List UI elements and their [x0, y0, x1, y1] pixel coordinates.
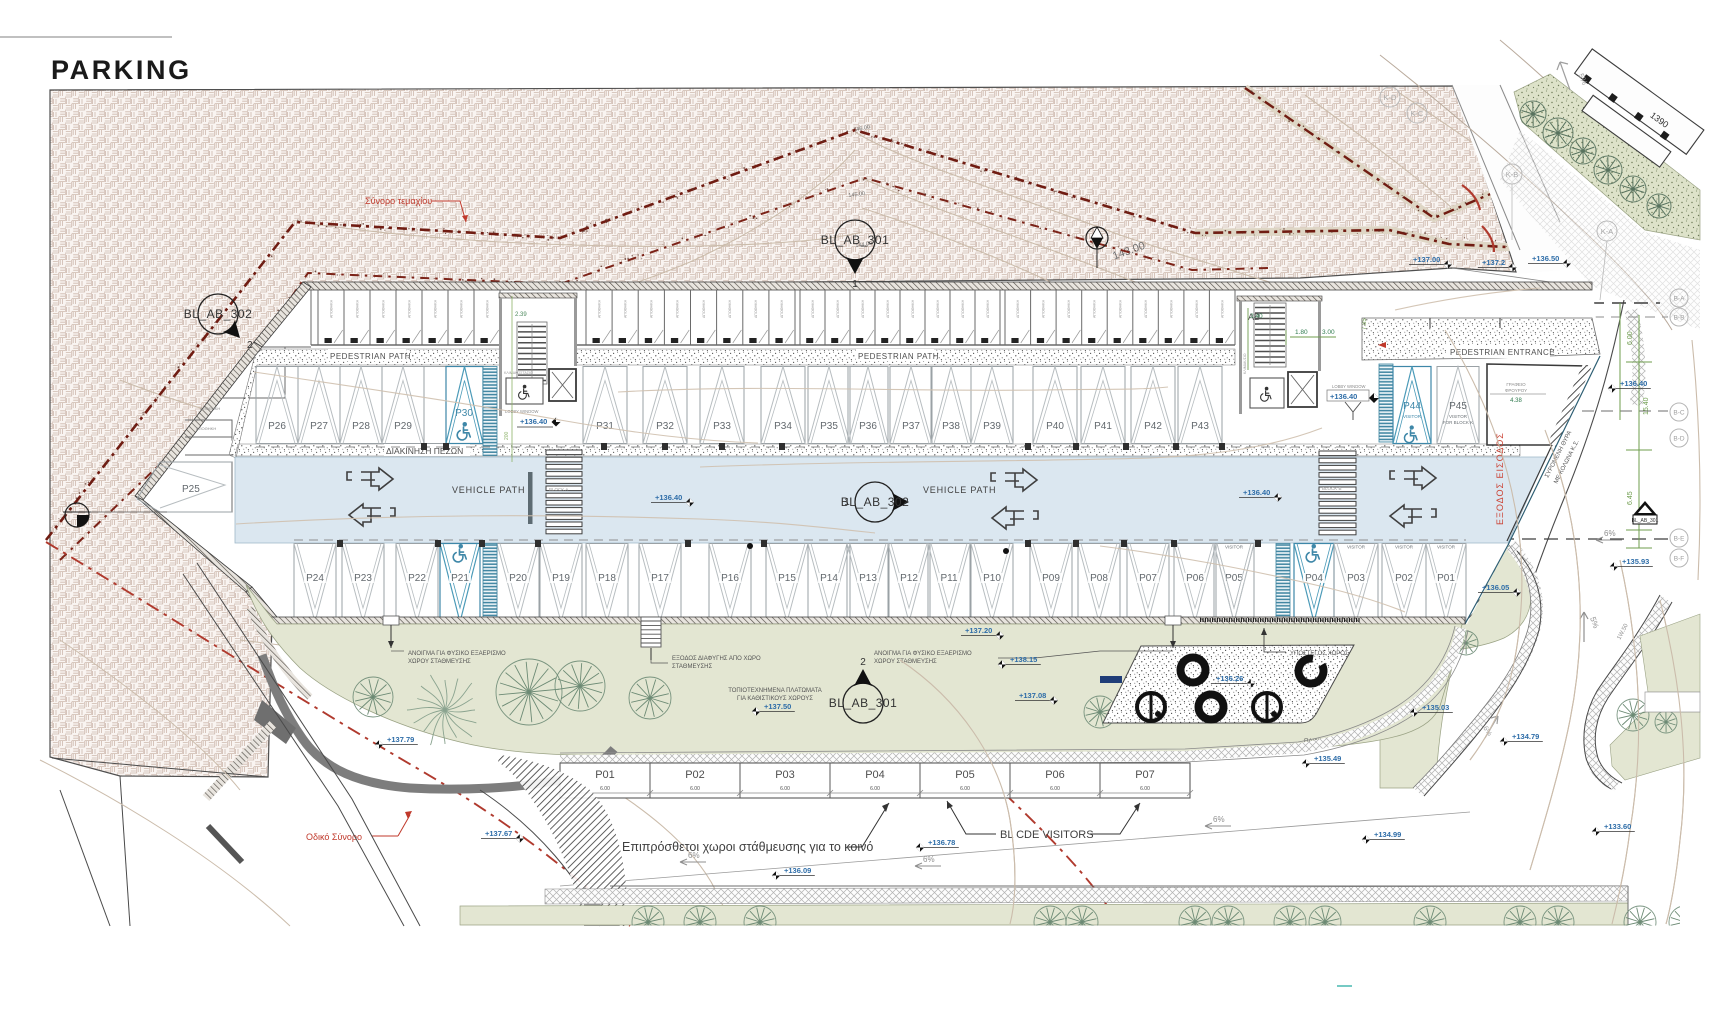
- svg-text:ΣΤΑΘΜΕΥΣΗΣ: ΣΤΑΘΜΕΥΣΗΣ: [672, 664, 713, 670]
- svg-text:K-D: K-D: [1384, 93, 1398, 102]
- svg-text:P24: P24: [306, 573, 324, 584]
- svg-text:+136.26: +136.26: [1216, 674, 1243, 683]
- svg-text:2: 2: [860, 657, 866, 668]
- svg-text:ΑΠΟΘΗΚΗ: ΑΠΟΘΗΚΗ: [433, 299, 437, 318]
- svg-text:ΑΠΟΘΗΚΗ: ΑΠΟΘΗΚΗ: [196, 426, 216, 431]
- svg-text:P07: P07: [1135, 769, 1155, 781]
- svg-text:1: 1: [852, 279, 858, 290]
- svg-text:ΑΠΟΘΗΚΗ: ΑΠΟΘΗΚΗ: [650, 299, 654, 318]
- svg-text:BL_AB_302: BL_AB_302: [841, 495, 910, 509]
- svg-text:P16: P16: [721, 573, 739, 584]
- svg-text:P41: P41: [1094, 421, 1112, 432]
- svg-text:ΓΡΑΦΕΙΟ: ΓΡΑΦΕΙΟ: [1506, 382, 1526, 387]
- svg-text:Σύνορο τεμαχίου: Σύνορο τεμαχίου: [365, 196, 432, 206]
- svg-text:ΑΠΟΘΗΚΗ: ΑΠΟΘΗΚΗ: [676, 299, 680, 318]
- svg-text:P30: P30: [455, 408, 473, 419]
- svg-text:P20: P20: [509, 573, 527, 584]
- svg-text:LOBBY WINDOW: LOBBY WINDOW: [1332, 384, 1365, 389]
- svg-text:P39: P39: [983, 421, 1001, 432]
- svg-text:15.40: 15.40: [1643, 397, 1650, 415]
- svg-text:ΑΠΟΘΗΚΗ: ΑΠΟΘΗΚΗ: [836, 299, 840, 318]
- svg-text:+136.09: +136.09: [784, 866, 811, 875]
- svg-text:6.00: 6.00: [1627, 331, 1634, 345]
- svg-text:2.39: 2.39: [515, 312, 527, 318]
- svg-text:ΧΩΡΟΥ ΣΤΑΘΜΕΥΣΗΣ: ΧΩΡΟΥ ΣΤΑΘΜΕΥΣΗΣ: [408, 659, 471, 665]
- svg-text:B-E: B-E: [1674, 536, 1686, 543]
- svg-text:P06: P06: [1045, 769, 1065, 781]
- svg-text:6.00: 6.00: [690, 786, 700, 792]
- svg-text:VISITOR: VISITOR: [1347, 545, 1366, 550]
- svg-text:6%: 6%: [1604, 529, 1616, 538]
- svg-text:P45: P45: [1449, 401, 1467, 412]
- svg-text:P44: P44: [1403, 401, 1421, 412]
- svg-text:+137.2: +137.2: [1482, 258, 1505, 267]
- svg-text:VISITOR: VISITOR: [1403, 414, 1422, 419]
- svg-text:ΑΠΟΘΗΚΗ: ΑΠΟΘΗΚΗ: [1016, 299, 1020, 318]
- svg-text:P19: P19: [552, 573, 570, 584]
- svg-text:ΑΠΟΘΗΚΗ: ΑΠΟΘΗΚΗ: [728, 299, 732, 318]
- svg-text:K-A: K-A: [1601, 227, 1614, 236]
- svg-text:+136.40: +136.40: [1243, 488, 1270, 497]
- svg-text:BLOCK A: BLOCK A: [549, 487, 568, 492]
- svg-text:6.00: 6.00: [600, 786, 610, 792]
- svg-text:6.00: 6.00: [780, 786, 790, 792]
- svg-text:+137.00: +137.00: [1413, 255, 1440, 264]
- svg-text:+134.99: +134.99: [1374, 830, 1401, 839]
- svg-text:P25: P25: [182, 484, 200, 495]
- svg-text:VISITOR: VISITOR: [1437, 545, 1456, 550]
- svg-text:6.00: 6.00: [1050, 786, 1060, 792]
- svg-text:BL_AB_301: BL_AB_301: [821, 233, 890, 247]
- svg-text:ΚΛΙΜΑΚ/ΣΙΟ: ΚΛΙΜΑΚ/ΣΙΟ: [1243, 353, 1247, 374]
- svg-text:VEHICLE PATH: VEHICLE PATH: [923, 485, 996, 495]
- svg-text:2.40: 2.40: [1250, 313, 1263, 320]
- svg-text:P27: P27: [310, 421, 328, 432]
- svg-text:ΑΠΟΘΗΚΗ: ΑΠΟΘΗΚΗ: [702, 299, 706, 318]
- svg-text:P04: P04: [865, 769, 885, 781]
- svg-text:P01: P01: [1437, 573, 1455, 584]
- svg-text:P35: P35: [820, 421, 838, 432]
- svg-text:P42: P42: [1144, 421, 1162, 432]
- svg-text:P09: P09: [1042, 573, 1060, 584]
- svg-text:+135.03: +135.03: [1422, 703, 1449, 712]
- svg-text:PEDESTRIAN PATH: PEDESTRIAN PATH: [330, 352, 411, 361]
- svg-text:+136.78: +136.78: [928, 838, 955, 847]
- svg-text:P06: P06: [1186, 573, 1204, 584]
- svg-text:ΑΠΟΘΗΚΗ: ΑΠΟΘΗΚΗ: [624, 299, 628, 318]
- svg-text:+137.20: +137.20: [965, 626, 992, 635]
- svg-text:P03: P03: [775, 769, 795, 781]
- svg-text:BL CDE VISITORS: BL CDE VISITORS: [1000, 829, 1094, 841]
- svg-text:ΕΞΟΔΟΣ ΕΙΣΟΔΟΣ: ΕΞΟΔΟΣ ΕΙΣΟΔΟΣ: [1495, 432, 1505, 525]
- svg-text:ΑΠΟΘΗΚΗ: ΑΠΟΘΗΚΗ: [1118, 299, 1122, 318]
- svg-text:P10: P10: [983, 573, 1001, 584]
- svg-text:+135.49: +135.49: [1314, 754, 1341, 763]
- svg-text:6%: 6%: [1213, 815, 1225, 824]
- svg-text:ΑΠΟΘΗΚΗ: ΑΠΟΘΗΚΗ: [936, 299, 940, 318]
- svg-text:P13: P13: [859, 573, 877, 584]
- svg-text:6.00: 6.00: [1140, 786, 1150, 792]
- svg-text:P01: P01: [595, 769, 615, 781]
- svg-text:6.00: 6.00: [870, 786, 880, 792]
- svg-text:P43: P43: [1191, 421, 1209, 432]
- svg-text:VISITOR: VISITOR: [1395, 545, 1414, 550]
- svg-text:PARKING: PARKING: [51, 55, 192, 85]
- svg-text:ΑΠΟΘΗΚΗ: ΑΠΟΘΗΚΗ: [1144, 299, 1148, 318]
- svg-text:P18: P18: [598, 573, 616, 584]
- svg-text:+137.79: +137.79: [387, 735, 414, 744]
- svg-text:P21: P21: [451, 573, 469, 584]
- svg-text:B-D: B-D: [1673, 436, 1685, 443]
- svg-text:ΑΠΟΘΗΚΗ: ΑΠΟΘΗΚΗ: [485, 299, 489, 318]
- svg-text:ΑΠΟΘΗΚΗ: ΑΠΟΘΗΚΗ: [407, 299, 411, 318]
- svg-text:ΑΝΟΙΓΜΑ ΓΙΑ ΦΥΣΙΚΟ ΕΞΑΕΡΙΣΜΟ: ΑΝΟΙΓΜΑ ΓΙΑ ΦΥΣΙΚΟ ΕΞΑΕΡΙΣΜΟ: [408, 651, 506, 657]
- svg-text:B-F: B-F: [1674, 556, 1685, 563]
- svg-text:6%: 6%: [688, 851, 700, 860]
- svg-text:4.38: 4.38: [1510, 398, 1522, 404]
- svg-text:P28: P28: [352, 421, 370, 432]
- svg-text:BL_AB_301: BL_AB_301: [829, 696, 898, 710]
- svg-text:P32: P32: [656, 421, 674, 432]
- svg-text:ΚΛΙΜΑΚΟΣΤΑΣΙΟ: ΚΛΙΜΑΚΟΣΤΑΣΙΟ: [504, 371, 533, 375]
- svg-text:ΑΠΟΘΗΚΗ: ΑΠΟΘΗΚΗ: [597, 299, 601, 318]
- svg-text:+136.40: +136.40: [1620, 379, 1647, 388]
- svg-text:PEDESTRIAN ENTRANCE: PEDESTRIAN ENTRANCE: [1450, 348, 1555, 357]
- svg-text:VISITOR: VISITOR: [1449, 414, 1468, 419]
- svg-text:ΥΠΟΣΤΕΓΟΣ ΧΩΡΟΣ: ΥΠΟΣΤΕΓΟΣ ΧΩΡΟΣ: [1290, 651, 1349, 657]
- svg-text:BLOCK B: BLOCK B: [1322, 486, 1342, 491]
- svg-text:ΑΠΟΘΗΚΗ: ΑΠΟΘΗΚΗ: [1067, 299, 1071, 318]
- svg-text:200: 200: [504, 431, 510, 440]
- svg-text:P26: P26: [268, 421, 286, 432]
- svg-text:6.00: 6.00: [960, 786, 970, 792]
- svg-text:+137.08: +137.08: [1019, 691, 1046, 700]
- svg-text:P12: P12: [900, 573, 918, 584]
- svg-text:ΤΟΠΙΟΤΕΧΝΗΜΕΝΑ ΠΛΑΤΩΜΑΤΑ: ΤΟΠΙΟΤΕΧΝΗΜΕΝΑ ΠΛΑΤΩΜΑΤΑ: [728, 688, 822, 694]
- svg-text:BL_AB_302: BL_AB_302: [184, 307, 253, 321]
- svg-text:ΑΠΟΘΗΚΗ: ΑΠΟΘΗΚΗ: [911, 299, 915, 318]
- svg-text:P15: P15: [778, 573, 796, 584]
- svg-text:P22: P22: [408, 573, 426, 584]
- svg-text:K-B: K-B: [1506, 170, 1519, 179]
- svg-text:P05: P05: [955, 769, 975, 781]
- svg-text:P17: P17: [651, 573, 669, 584]
- svg-text:+136.50: +136.50: [1532, 254, 1559, 263]
- svg-text:P40: P40: [1046, 421, 1064, 432]
- svg-text:ΑΠΟΘΗΚΗ: ΑΠΟΘΗΚΗ: [1169, 299, 1173, 318]
- svg-text:BL_AB_301: BL_AB_301: [1632, 518, 1659, 524]
- svg-text:B-A: B-A: [1674, 296, 1686, 303]
- svg-text:+136.05: +136.05: [1482, 583, 1509, 592]
- svg-text:P33: P33: [713, 421, 731, 432]
- svg-text:3.00: 3.00: [1322, 329, 1335, 336]
- svg-text:P08: P08: [1090, 573, 1108, 584]
- svg-text:P23: P23: [354, 573, 372, 584]
- svg-text:+134.79: +134.79: [1512, 732, 1539, 741]
- svg-text:+136.40: +136.40: [655, 493, 682, 502]
- svg-text:ΕΞΟΔΟΣ ΔΙΑΦΥΓΗΣ ΑΠΟ ΧΩΡΟ: ΕΞΟΔΟΣ ΔΙΑΦΥΓΗΣ ΑΠΟ ΧΩΡΟ: [672, 656, 761, 662]
- svg-text:ΑΠΟΘΗΚΗ: ΑΠΟΘΗΚΗ: [1093, 299, 1097, 318]
- svg-text:6.45: 6.45: [1627, 491, 1634, 505]
- svg-text:P37: P37: [902, 421, 920, 432]
- svg-text:ΑΠΟΘΗΚΗ: ΑΠΟΘΗΚΗ: [329, 299, 333, 318]
- svg-text:1.80: 1.80: [1295, 329, 1308, 336]
- svg-text:2: 2: [247, 340, 253, 351]
- svg-text:P03: P03: [1347, 573, 1365, 584]
- svg-text:ΑΠΟΘΗΚΗ: ΑΠΟΘΗΚΗ: [886, 299, 890, 318]
- svg-text:Επιπρόσθετοι χωροι στάθμευσης: Επιπρόσθετοι χωροι στάθμευσης για το κοι…: [622, 840, 873, 854]
- svg-text:ΑΠΟΘΗΚΗ: ΑΠΟΘΗΚΗ: [1221, 299, 1225, 318]
- svg-text:ΑΠΟΘΗΚΗ: ΑΠΟΘΗΚΗ: [754, 299, 758, 318]
- svg-text:P36: P36: [859, 421, 877, 432]
- svg-text:ΑΠΟΘΗΚΗ: ΑΠΟΘΗΚΗ: [381, 299, 385, 318]
- svg-text:ΑΠΟΘΗΚΗ: ΑΠΟΘΗΚΗ: [861, 299, 865, 318]
- svg-text:+137.67: +137.67: [485, 829, 512, 838]
- svg-text:ΑΠΟΘΗΚΗ: ΑΠΟΘΗΚΗ: [961, 299, 965, 318]
- svg-text:P02: P02: [1395, 573, 1413, 584]
- svg-text:ΦΡΟΥΡΟΥ: ΦΡΟΥΡΟΥ: [1505, 388, 1527, 393]
- svg-text:P34: P34: [774, 421, 792, 432]
- svg-text:+137.50: +137.50: [764, 702, 791, 711]
- svg-text:K-C: K-C: [1411, 109, 1425, 118]
- svg-text:PEDESTRIAN PATH: PEDESTRIAN PATH: [858, 352, 939, 361]
- svg-text:+136.40: +136.40: [520, 417, 547, 426]
- svg-text:ΑΠΟΘΗΚΗ: ΑΠΟΘΗΚΗ: [1195, 299, 1199, 318]
- svg-text:VISITOR: VISITOR: [1225, 545, 1244, 550]
- svg-text:ΑΠΟΘΗΚΗ: ΑΠΟΘΗΚΗ: [986, 299, 990, 318]
- svg-text:ΑΝΟΙΓΜΑ ΓΙΑ ΦΥΣΙΚΟ ΕΞΑΕΡΙΣΜΟ: ΑΝΟΙΓΜΑ ΓΙΑ ΦΥΣΙΚΟ ΕΞΑΕΡΙΣΜΟ: [874, 651, 972, 657]
- svg-text:P04: P04: [1305, 573, 1323, 584]
- svg-text:ΑΠΟΘΗΚΗ: ΑΠΟΘΗΚΗ: [355, 299, 359, 318]
- svg-text:ΑΠΟΘΗΚΗ: ΑΠΟΘΗΚΗ: [1042, 299, 1046, 318]
- svg-text:P02: P02: [685, 769, 705, 781]
- svg-text:FOR BLOCK K: FOR BLOCK K: [1443, 420, 1473, 425]
- svg-text:ΑΠΟΘΗΚΗ: ΑΠΟΘΗΚΗ: [459, 299, 463, 318]
- svg-text:VEHICLE PATH: VEHICLE PATH: [452, 485, 525, 495]
- svg-text:B-C: B-C: [1673, 410, 1685, 417]
- svg-text:P14: P14: [820, 573, 838, 584]
- svg-text:+133.60: +133.60: [1604, 822, 1631, 831]
- svg-text:P07: P07: [1139, 573, 1157, 584]
- svg-text:B-B: B-B: [1674, 315, 1685, 322]
- svg-text:ΑΠΟΘΗΚΗ: ΑΠΟΘΗΚΗ: [200, 406, 220, 411]
- svg-text:+136.40: +136.40: [1330, 392, 1357, 401]
- svg-text:P11: P11: [940, 573, 957, 584]
- svg-text:+138.15: +138.15: [1010, 655, 1037, 664]
- svg-text:P38: P38: [942, 421, 960, 432]
- svg-text:ΑΠΟΘΗΚΗ: ΑΠΟΘΗΚΗ: [811, 299, 815, 318]
- svg-text:+135.93: +135.93: [1622, 557, 1649, 566]
- svg-text:P29: P29: [394, 421, 412, 432]
- svg-text:ΑΠΟΘΗΚΗ: ΑΠΟΘΗΚΗ: [780, 299, 784, 318]
